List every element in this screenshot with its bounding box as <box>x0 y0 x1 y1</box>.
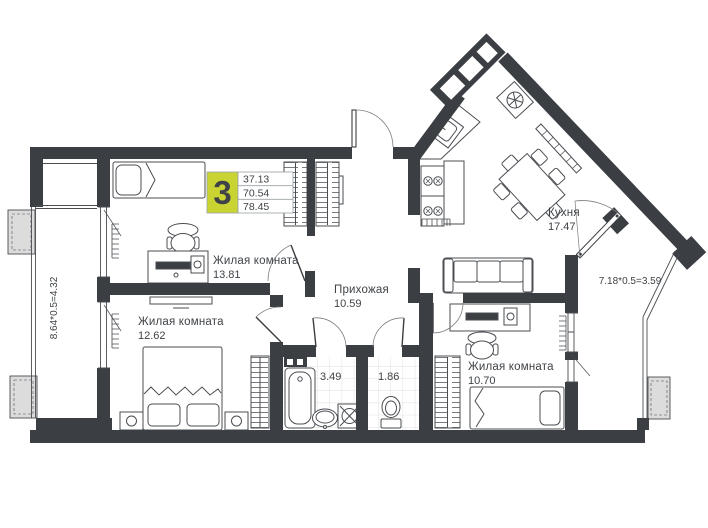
label-room1-name: Жилая комната <box>213 255 299 267</box>
monitor <box>466 313 498 320</box>
wall-segment <box>97 150 110 207</box>
label-room1-area: 13.81 <box>213 269 241 281</box>
badge-area-apartment: 70.54 <box>243 188 269 200</box>
label-wc-area: 1.86 <box>378 371 399 383</box>
nightstand-left <box>120 412 143 430</box>
pillow <box>116 165 141 195</box>
single-bed-room3 <box>470 387 564 429</box>
label-room3-area: 10.70 <box>468 375 496 387</box>
stove <box>421 166 444 226</box>
pillow <box>187 404 219 426</box>
door-wc <box>373 318 404 347</box>
label-hallway-area: 10.59 <box>334 298 362 310</box>
window-kitchen-side <box>566 360 578 382</box>
wall-segment <box>419 303 433 430</box>
wall-segment <box>356 357 368 430</box>
wall-segment <box>270 295 283 307</box>
wardrobe-room3 <box>435 356 460 428</box>
label-kitchen-area: 17.47 <box>548 221 576 233</box>
ac-unit-left-bottom <box>10 376 37 418</box>
wardrobe-room2 <box>251 356 269 428</box>
wall-segment <box>283 345 316 357</box>
wall-segment <box>36 418 112 430</box>
wall-segment <box>30 430 645 443</box>
ac-unit-right <box>648 377 670 419</box>
floor-plan-page: Жилая комната 13.81 Жилая комната 12.62 … <box>0 0 708 528</box>
window-room3 <box>566 313 590 376</box>
label-bathroom-area: 3.49 <box>320 371 341 383</box>
badge-area-total: 78.45 <box>243 201 269 213</box>
wall-segment <box>420 293 433 303</box>
pillow <box>540 391 560 425</box>
dimension-right-balcony: 7.18*0.5=3.59 <box>599 276 662 287</box>
shaft <box>430 33 506 109</box>
label-room3-name: Жилая комната <box>468 361 554 373</box>
nightstand-right <box>225 412 248 430</box>
radiator-room1 <box>112 224 119 258</box>
wall-segment <box>565 255 578 313</box>
label-kitchen-name: Кухня <box>548 207 580 219</box>
double-bed-room2 <box>143 347 222 430</box>
wall-segment <box>463 293 578 303</box>
wall-segment <box>402 345 419 357</box>
bathtub <box>285 368 315 428</box>
wall-segment <box>565 382 578 430</box>
wall-segment <box>565 352 578 360</box>
window-room1 <box>98 207 121 277</box>
wall-segment <box>305 271 315 297</box>
pillow <box>148 404 180 426</box>
single-bed-room1 <box>113 162 205 198</box>
toilet <box>381 397 401 429</box>
wall-segment <box>270 342 283 430</box>
wall-segment <box>408 159 420 215</box>
area-badge: 3 37.13 70.54 78.45 <box>207 172 293 213</box>
desk-room3 <box>450 304 530 331</box>
desk-room1 <box>148 251 208 283</box>
dimension-left-balcony: 8.64*0.5=4.32 <box>49 276 60 339</box>
ac-unit-left-top <box>8 210 35 254</box>
label-hallway-name: Прихожая <box>334 284 389 296</box>
tv-room2 <box>150 297 212 308</box>
wall-segment <box>346 345 374 357</box>
wall-segment <box>30 147 352 159</box>
label-room2-area: 12.62 <box>138 330 166 342</box>
radiator-room3 <box>559 316 566 350</box>
sofa <box>443 258 533 293</box>
window-room2 <box>98 302 121 368</box>
wall-segment <box>307 159 315 236</box>
wall-segment <box>30 147 43 207</box>
monitor <box>156 262 190 269</box>
badge-area-living: 37.13 <box>243 174 269 186</box>
wardrobe-hallway <box>316 162 343 226</box>
wall-segment <box>103 283 270 295</box>
office-chair-room1 <box>167 224 199 253</box>
badge-room-count: 3 <box>213 174 231 211</box>
office-chair-room3 <box>466 332 498 359</box>
door-bathroom <box>313 318 346 347</box>
wall-segment <box>637 418 649 430</box>
wall-segment <box>408 268 420 303</box>
floor-plan: Жилая комната 13.81 Жилая комната 12.62 … <box>0 0 708 528</box>
entrance-door <box>352 110 393 147</box>
label-room2-name: Жилая комната <box>138 316 224 328</box>
door-room2 <box>256 307 281 342</box>
